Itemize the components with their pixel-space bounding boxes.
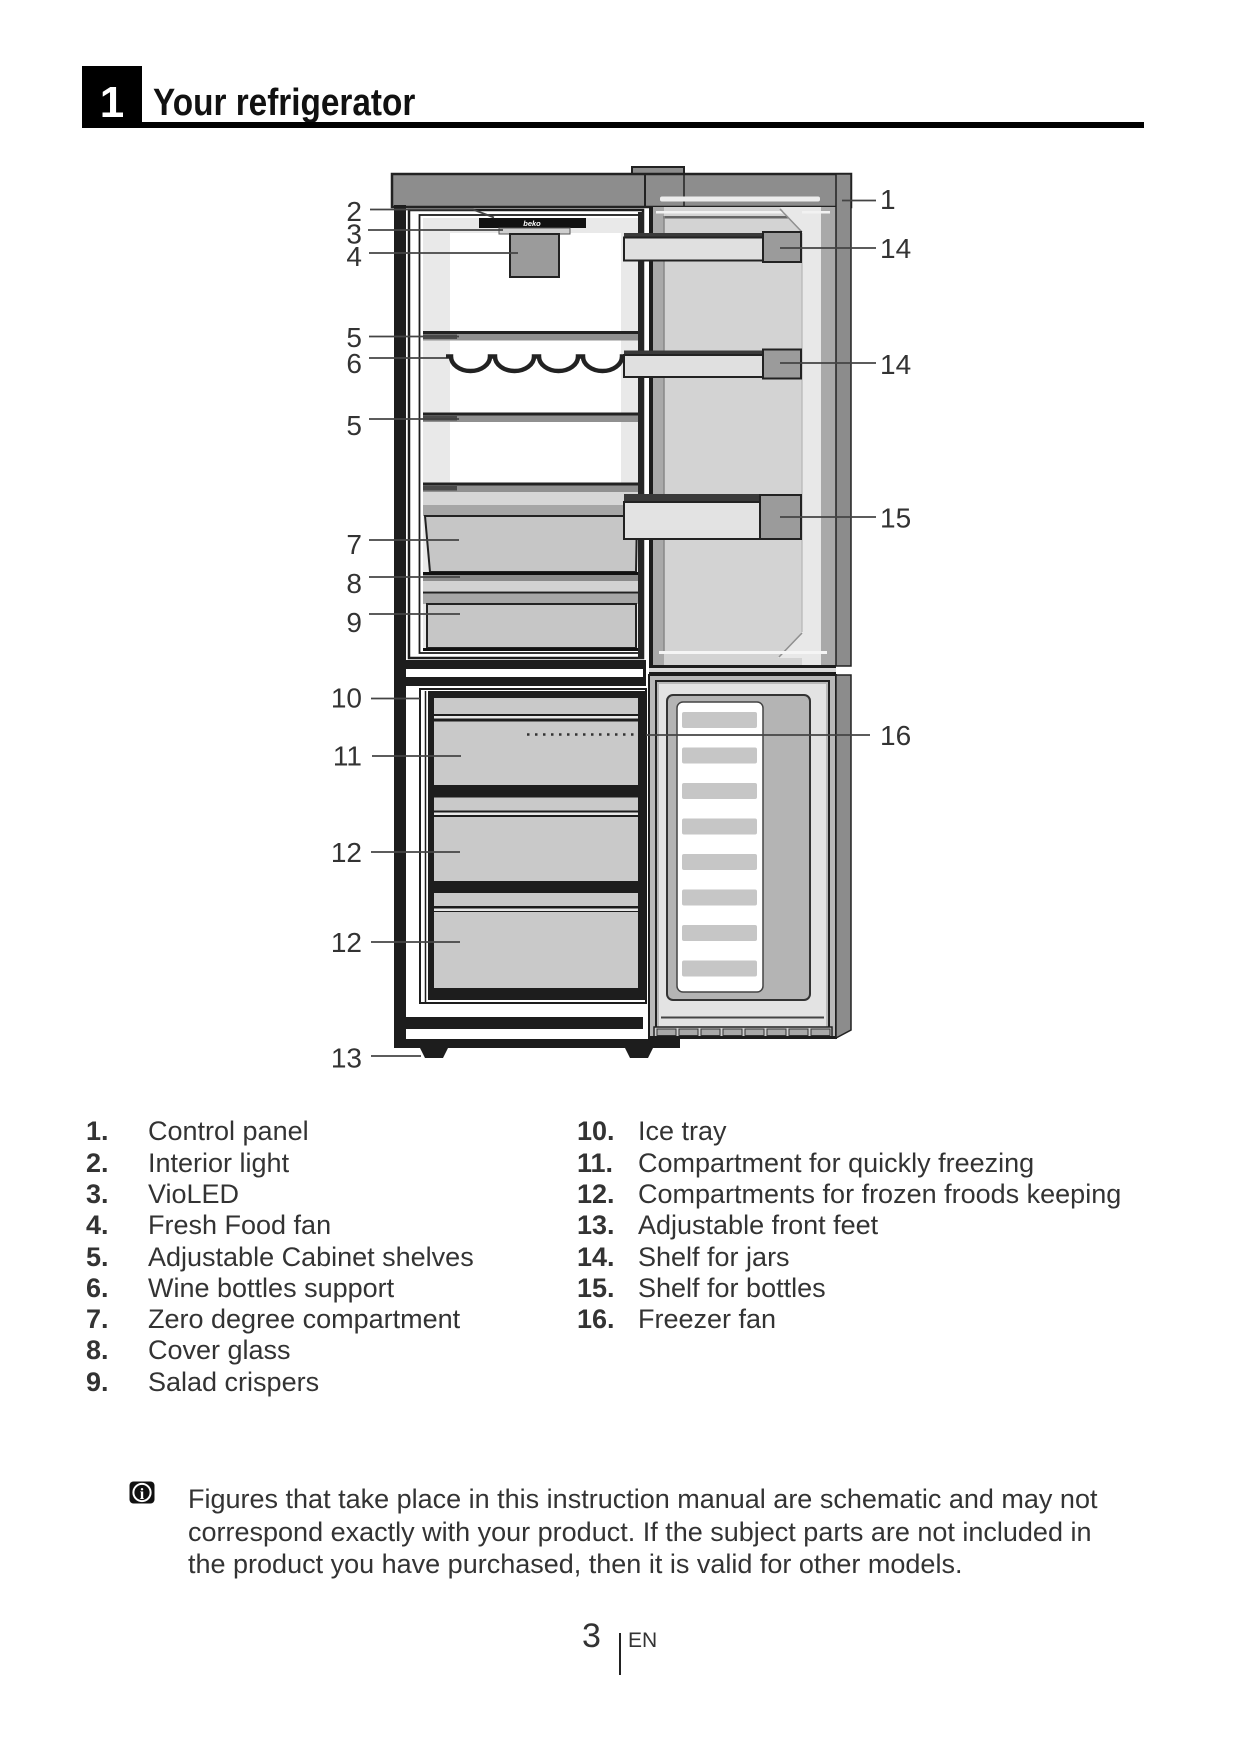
svg-text:16: 16 [880, 720, 911, 751]
svg-text:beko: beko [523, 219, 541, 228]
svg-text:13: 13 [331, 1043, 362, 1074]
svg-text:9: 9 [346, 607, 362, 638]
svg-text:11: 11 [333, 741, 362, 772]
svg-text:14: 14 [880, 233, 911, 264]
svg-text:i: i [140, 1486, 145, 1503]
svg-text:14: 14 [880, 349, 911, 380]
svg-text:8: 8 [346, 568, 362, 599]
svg-text:15: 15 [880, 503, 911, 534]
svg-text:7: 7 [346, 529, 362, 560]
svg-text:10: 10 [331, 683, 362, 714]
svg-text:6: 6 [346, 348, 362, 379]
svg-text:1: 1 [880, 184, 896, 215]
svg-text:4: 4 [346, 241, 362, 272]
svg-text:12: 12 [331, 837, 362, 868]
svg-text:12: 12 [331, 927, 362, 958]
svg-text:5: 5 [346, 410, 362, 441]
